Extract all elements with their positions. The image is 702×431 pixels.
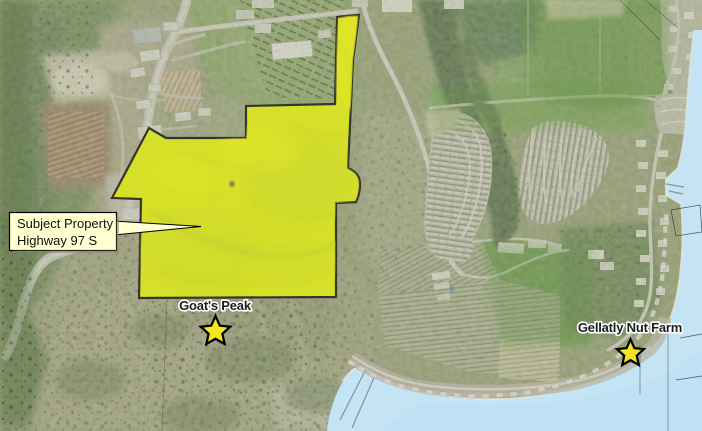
svg-text:Subject Property: Subject Property	[17, 216, 114, 231]
svg-text:Gellatly Nut Farm: Gellatly Nut Farm	[578, 320, 682, 335]
svg-text:Highway 97 S: Highway 97 S	[17, 233, 98, 248]
svg-text:Goat's Peak: Goat's Peak	[179, 298, 252, 313]
